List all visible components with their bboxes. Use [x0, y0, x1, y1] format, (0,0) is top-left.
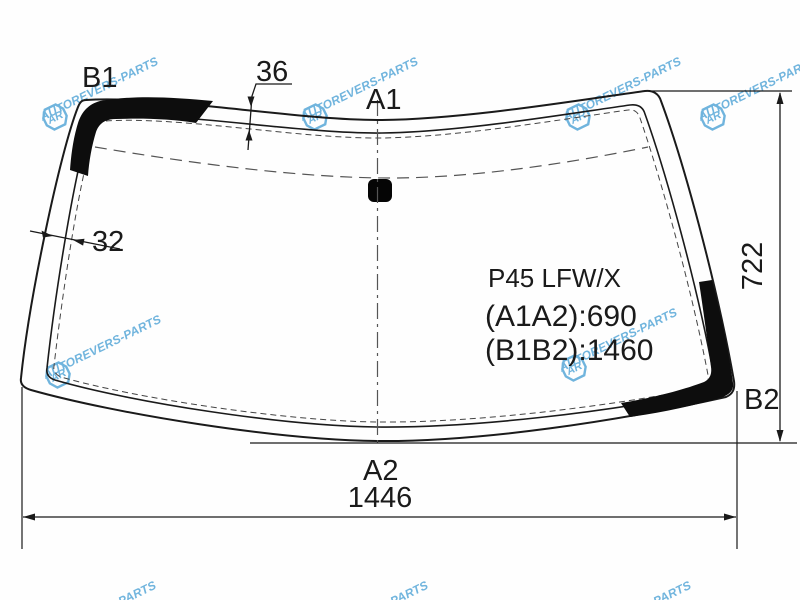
dim-value-side-band: 32	[92, 226, 124, 258]
part-code: P45 LFW/X	[488, 263, 621, 293]
label-a1: A1	[366, 84, 401, 116]
part-dim-a1a2: (A1A2):690	[485, 300, 637, 333]
dim-value-top-band: 36	[256, 56, 288, 88]
label-b1: B1	[82, 62, 117, 94]
label-b2: B2	[744, 384, 779, 416]
dim-top-band	[246, 84, 293, 150]
mirror-mount	[368, 179, 392, 202]
frit-band-top-left	[70, 97, 213, 176]
ceramic-band-dashed-line	[95, 147, 648, 178]
windshield-diagram-page: AR AUTOREVERS-PARTS AR AUTOREVERS-PARTS …	[0, 0, 800, 600]
windshield-drawing: B1 A1 B2 A2 36 32 722 1446 P45 LFW/X (A1…	[0, 0, 800, 600]
dim-value-width: 1446	[348, 482, 413, 514]
dim-value-height: 722	[737, 242, 769, 290]
part-dim-b1b2: (B1B2):1460	[485, 334, 653, 367]
